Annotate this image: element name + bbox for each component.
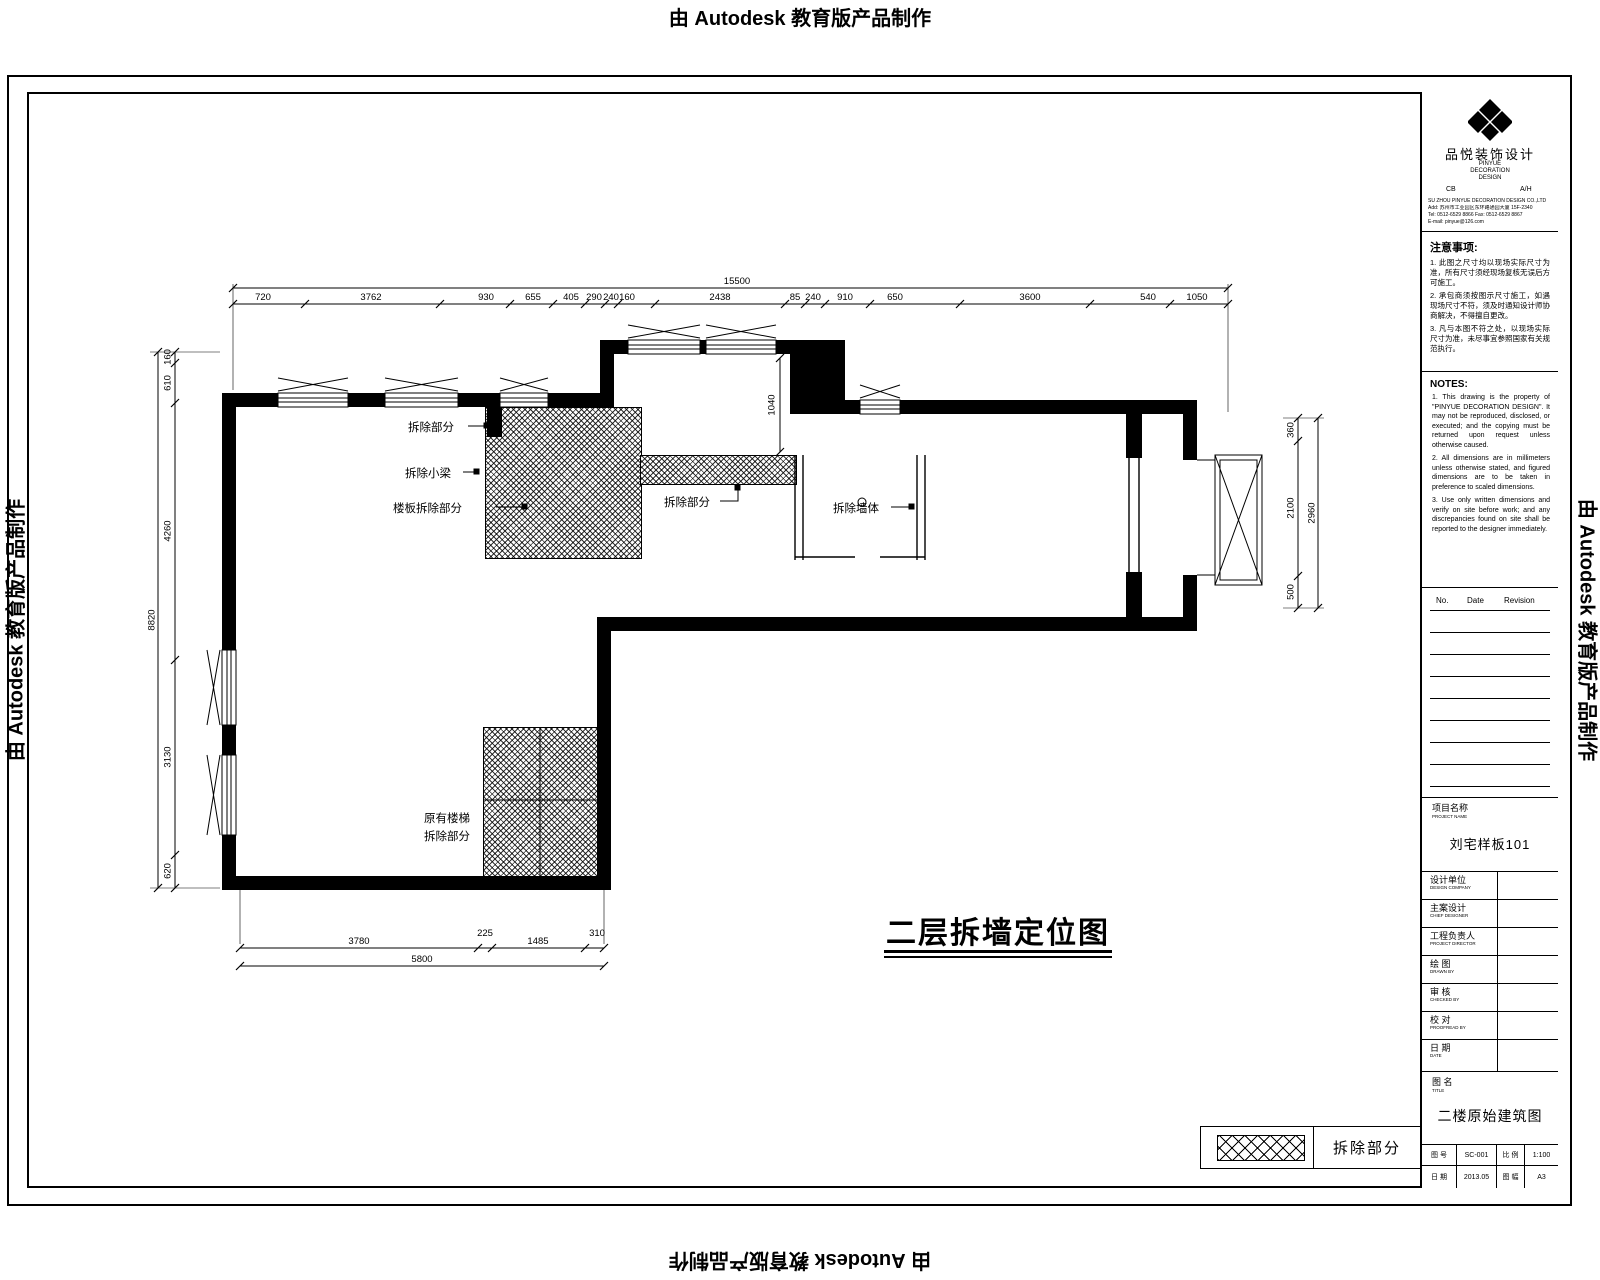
wall [222, 393, 236, 650]
watermark-left: 由 Autodesk 教育版产品制作 [0, 499, 29, 761]
dim-label: 8820 [147, 609, 158, 630]
project-value: 刘宅样板101 [1422, 834, 1558, 853]
notes-en-item: 2. All dimensions are in millimeters unl… [1432, 454, 1550, 492]
wall-pier [1126, 414, 1142, 458]
dim-label: 650 [887, 292, 903, 303]
plan-title-underline2 [884, 956, 1112, 958]
minitable-row: 日 期 2013.05 图 幅 A3 [1422, 1166, 1558, 1188]
revision-section: No. Date Revision [1422, 588, 1558, 798]
wall [222, 876, 611, 890]
dim-label: 1485 [527, 936, 548, 947]
field-row: 日 期DATE [1422, 1040, 1558, 1072]
dim-label: 160 [619, 292, 635, 303]
company-section: 品悦装饰设计 PINYUE DECORATION DESIGN CB A/H S… [1422, 92, 1558, 232]
minitable-cell: 1:100 [1524, 1145, 1558, 1165]
project-section: 项目名称 PROJECT NAME 刘宅样板101 [1422, 798, 1558, 872]
wall [597, 617, 1197, 631]
field-row: 主案设计CHIEF DESIGNER [1422, 900, 1558, 928]
dim-label: 1040 [767, 394, 778, 415]
dim-label: 85 [790, 292, 801, 303]
title-block: 品悦装饰设计 PINYUE DECORATION DESIGN CB A/H S… [1420, 92, 1558, 1188]
legend-box: 拆除部分 [1200, 1126, 1422, 1169]
dim-label: 930 [478, 292, 494, 303]
notes-cn-heading: 注意事项: [1430, 239, 1558, 255]
minitable-cell: 图 幅 [1496, 1166, 1524, 1188]
notes-cn-item: 3. 凡与本图不符之处，以现场实际尺寸为准，未尽事宜参照国家有关规范执行。 [1430, 324, 1550, 354]
dim-label: 240 [603, 292, 619, 303]
drawing-title-section: 图 名 TITLE 二楼原始建筑图 [1422, 1072, 1558, 1145]
field-row: 绘 图DRAWN BY [1422, 956, 1558, 984]
notes-cn-item: 1. 此图之尺寸均以现场实际尺寸为准，所有尺寸须经现场复核无误后方可施工。 [1430, 258, 1550, 288]
wall [548, 393, 607, 407]
drawing-title-label-en: TITLE [1432, 1088, 1444, 1093]
dim-label: 910 [837, 292, 853, 303]
dim-label: 500 [1286, 584, 1297, 600]
dim-label: 3780 [348, 936, 369, 947]
dim-label: 310 [589, 928, 605, 939]
wall [348, 393, 385, 407]
field-label-en: CHECKED BY [1430, 997, 1497, 1002]
notes-en-section: NOTES: 1. This drawing is the property o… [1422, 372, 1558, 588]
wall [222, 725, 236, 755]
notes-en-item: 1. This drawing is the property of "PINY… [1432, 393, 1550, 450]
project-label-en: PROJECT NAME [1432, 814, 1467, 819]
revision-header-no: No. [1436, 596, 1448, 605]
dim-label: 15500 [724, 276, 750, 287]
field-label-en: DATE [1430, 1053, 1497, 1058]
dim-label: 290 [586, 292, 602, 303]
field-label-cn: 主案设计 [1430, 903, 1497, 913]
company-name-en1: PINYUE [1422, 162, 1558, 167]
wall [790, 354, 845, 414]
revision-header-revision: Revision [1504, 596, 1535, 605]
field-label-en: PROOFREAD BY [1430, 1025, 1497, 1030]
dim-label: 1050 [1186, 292, 1207, 303]
dim-label: 240 [805, 292, 821, 303]
dim-label: 3130 [163, 746, 174, 767]
minitable-cell: 比 例 [1496, 1145, 1524, 1165]
dim-label: 225 [477, 928, 493, 939]
field-row: 校 对PROOFREAD BY [1422, 1012, 1558, 1040]
drawing-title-label-cn: 图 名 [1432, 1077, 1453, 1087]
annotation-demolish-part: 拆除部分 [664, 494, 710, 510]
dim-label: 620 [163, 863, 174, 879]
demolition-hatch-swatch [1217, 1135, 1305, 1161]
dim-label: 5800 [411, 954, 432, 965]
revision-header-date: Date [1467, 596, 1484, 605]
dim-label: 540 [1140, 292, 1156, 303]
notes-cn-section: 注意事项: 1. 此图之尺寸均以现场实际尺寸为准，所有尺寸须经现场复核无误后方可… [1422, 232, 1558, 372]
dim-label: 360 [1286, 422, 1297, 438]
dim-label: 2100 [1286, 497, 1297, 518]
notes-en-item: 3. Use only written dimensions and verif… [1432, 496, 1550, 534]
dim-label: 3600 [1019, 292, 1040, 303]
field-label-cn: 设计单位 [1430, 875, 1497, 885]
minitable-row: 图 号 SC-001 比 例 1:100 [1422, 1145, 1558, 1166]
field-label-en: DESIGN COMPANY [1430, 885, 1497, 890]
field-label-en: PROJECT DIRECTOR [1430, 941, 1497, 946]
dim-label: 405 [563, 292, 579, 303]
project-label-cn: 项目名称 [1432, 803, 1468, 813]
field-label-cn: 日 期 [1430, 1043, 1497, 1053]
wall [597, 617, 611, 890]
wall [600, 340, 614, 407]
annotation-demolish-wall: 拆除墙体 [833, 500, 879, 516]
field-label-cn: 绘 图 [1430, 959, 1497, 969]
minitable-cell: 2013.05 [1456, 1166, 1496, 1188]
annotation-existing-stair-line2: 拆除部分 [424, 828, 470, 844]
dim-label: 2438 [709, 292, 730, 303]
field-label-cn: 校 对 [1430, 1015, 1497, 1025]
company-name-en3: DESIGN [1422, 176, 1558, 181]
field-label-en: DRAWN BY [1430, 969, 1497, 974]
watermark-top: 由 Autodesk 教育版产品制作 [669, 2, 931, 31]
notes-en-heading: NOTES: [1430, 379, 1558, 390]
annotation-demolish-beam: 拆除小梁 [405, 465, 451, 481]
wall-pier [1126, 572, 1142, 631]
watermark-right: 由 Autodesk 教育版产品制作 [1575, 499, 1600, 761]
annotation-demolish-part: 拆除部分 [408, 419, 454, 435]
company-logo-icon [1468, 98, 1512, 142]
dim-label: 720 [255, 292, 271, 303]
field-label-cn: 审 核 [1430, 987, 1497, 997]
wall [700, 340, 706, 354]
field-row: 工程负责人PROJECT DIRECTOR [1422, 928, 1558, 956]
company-address-4: E-mail: pinyue@126.com [1428, 219, 1554, 226]
minitable-cell: 日 期 [1422, 1166, 1456, 1188]
wall [1183, 414, 1197, 460]
demolition-hatch-corridor [640, 455, 797, 485]
field-row: 设计单位DESIGN COMPANY [1422, 872, 1558, 900]
plan-title-underline [884, 950, 1112, 953]
legend-label: 拆除部分 [1313, 1127, 1421, 1168]
demolition-hatch-stair-upper [485, 407, 642, 559]
company-address-1: SU ZHOU PINYUE DECORATION DESIGN CO.,LTD [1428, 198, 1554, 205]
minitable-cell: SC-001 [1456, 1145, 1496, 1165]
company-address-2: Add: 苏州市工业园区东环路通园大厦 15F-2340 [1428, 205, 1554, 212]
dim-label: 3762 [360, 292, 381, 303]
company-address-3: Tel: 0512-6529 8866 Fax: 0512-6529 8867 [1428, 212, 1554, 219]
wall [458, 393, 500, 407]
inner-border [27, 92, 1556, 1188]
company-name-en2: DECORATION [1422, 169, 1558, 174]
wall [776, 340, 845, 354]
annotation-slab-demolish: 楼板拆除部分 [393, 500, 462, 516]
watermark-bottom: 由 Autodesk 教育版产品制作 [669, 1248, 931, 1277]
wall [900, 400, 1197, 414]
wall [845, 400, 860, 414]
field-label-cn: 工程负责人 [1430, 931, 1497, 941]
drawing-title-value: 二楼原始建筑图 [1422, 1106, 1558, 1126]
wall-pier [487, 407, 502, 437]
dim-label: 160 [163, 349, 174, 365]
minitable-cell: A3 [1524, 1166, 1558, 1188]
demolition-hatch-stair-lower [483, 727, 599, 878]
dim-label: 4260 [163, 520, 174, 541]
company-sub-right: A/H [1520, 186, 1532, 193]
field-label-en: CHIEF DESIGNER [1430, 913, 1497, 918]
dim-label: 610 [163, 375, 174, 391]
dim-label: 655 [525, 292, 541, 303]
notes-cn-item: 2. 承包商须按图示尺寸施工，如遇现场尺寸不符，须及时通知设计师协商解决，不得擅… [1430, 291, 1550, 321]
dim-label: 2960 [1307, 502, 1318, 523]
field-row: 审 核CHECKED BY [1422, 984, 1558, 1012]
plan-title: 二层拆墙定位图 [886, 908, 1110, 952]
annotation-existing-stair-line1: 原有楼梯 [424, 810, 470, 826]
company-sub-left: CB [1446, 186, 1456, 193]
minitable-cell: 图 号 [1422, 1145, 1456, 1165]
cad-drawing-canvas: 由 Autodesk 教育版产品制作 由 Autodesk 教育版产品制作 由 … [0, 0, 1600, 1280]
